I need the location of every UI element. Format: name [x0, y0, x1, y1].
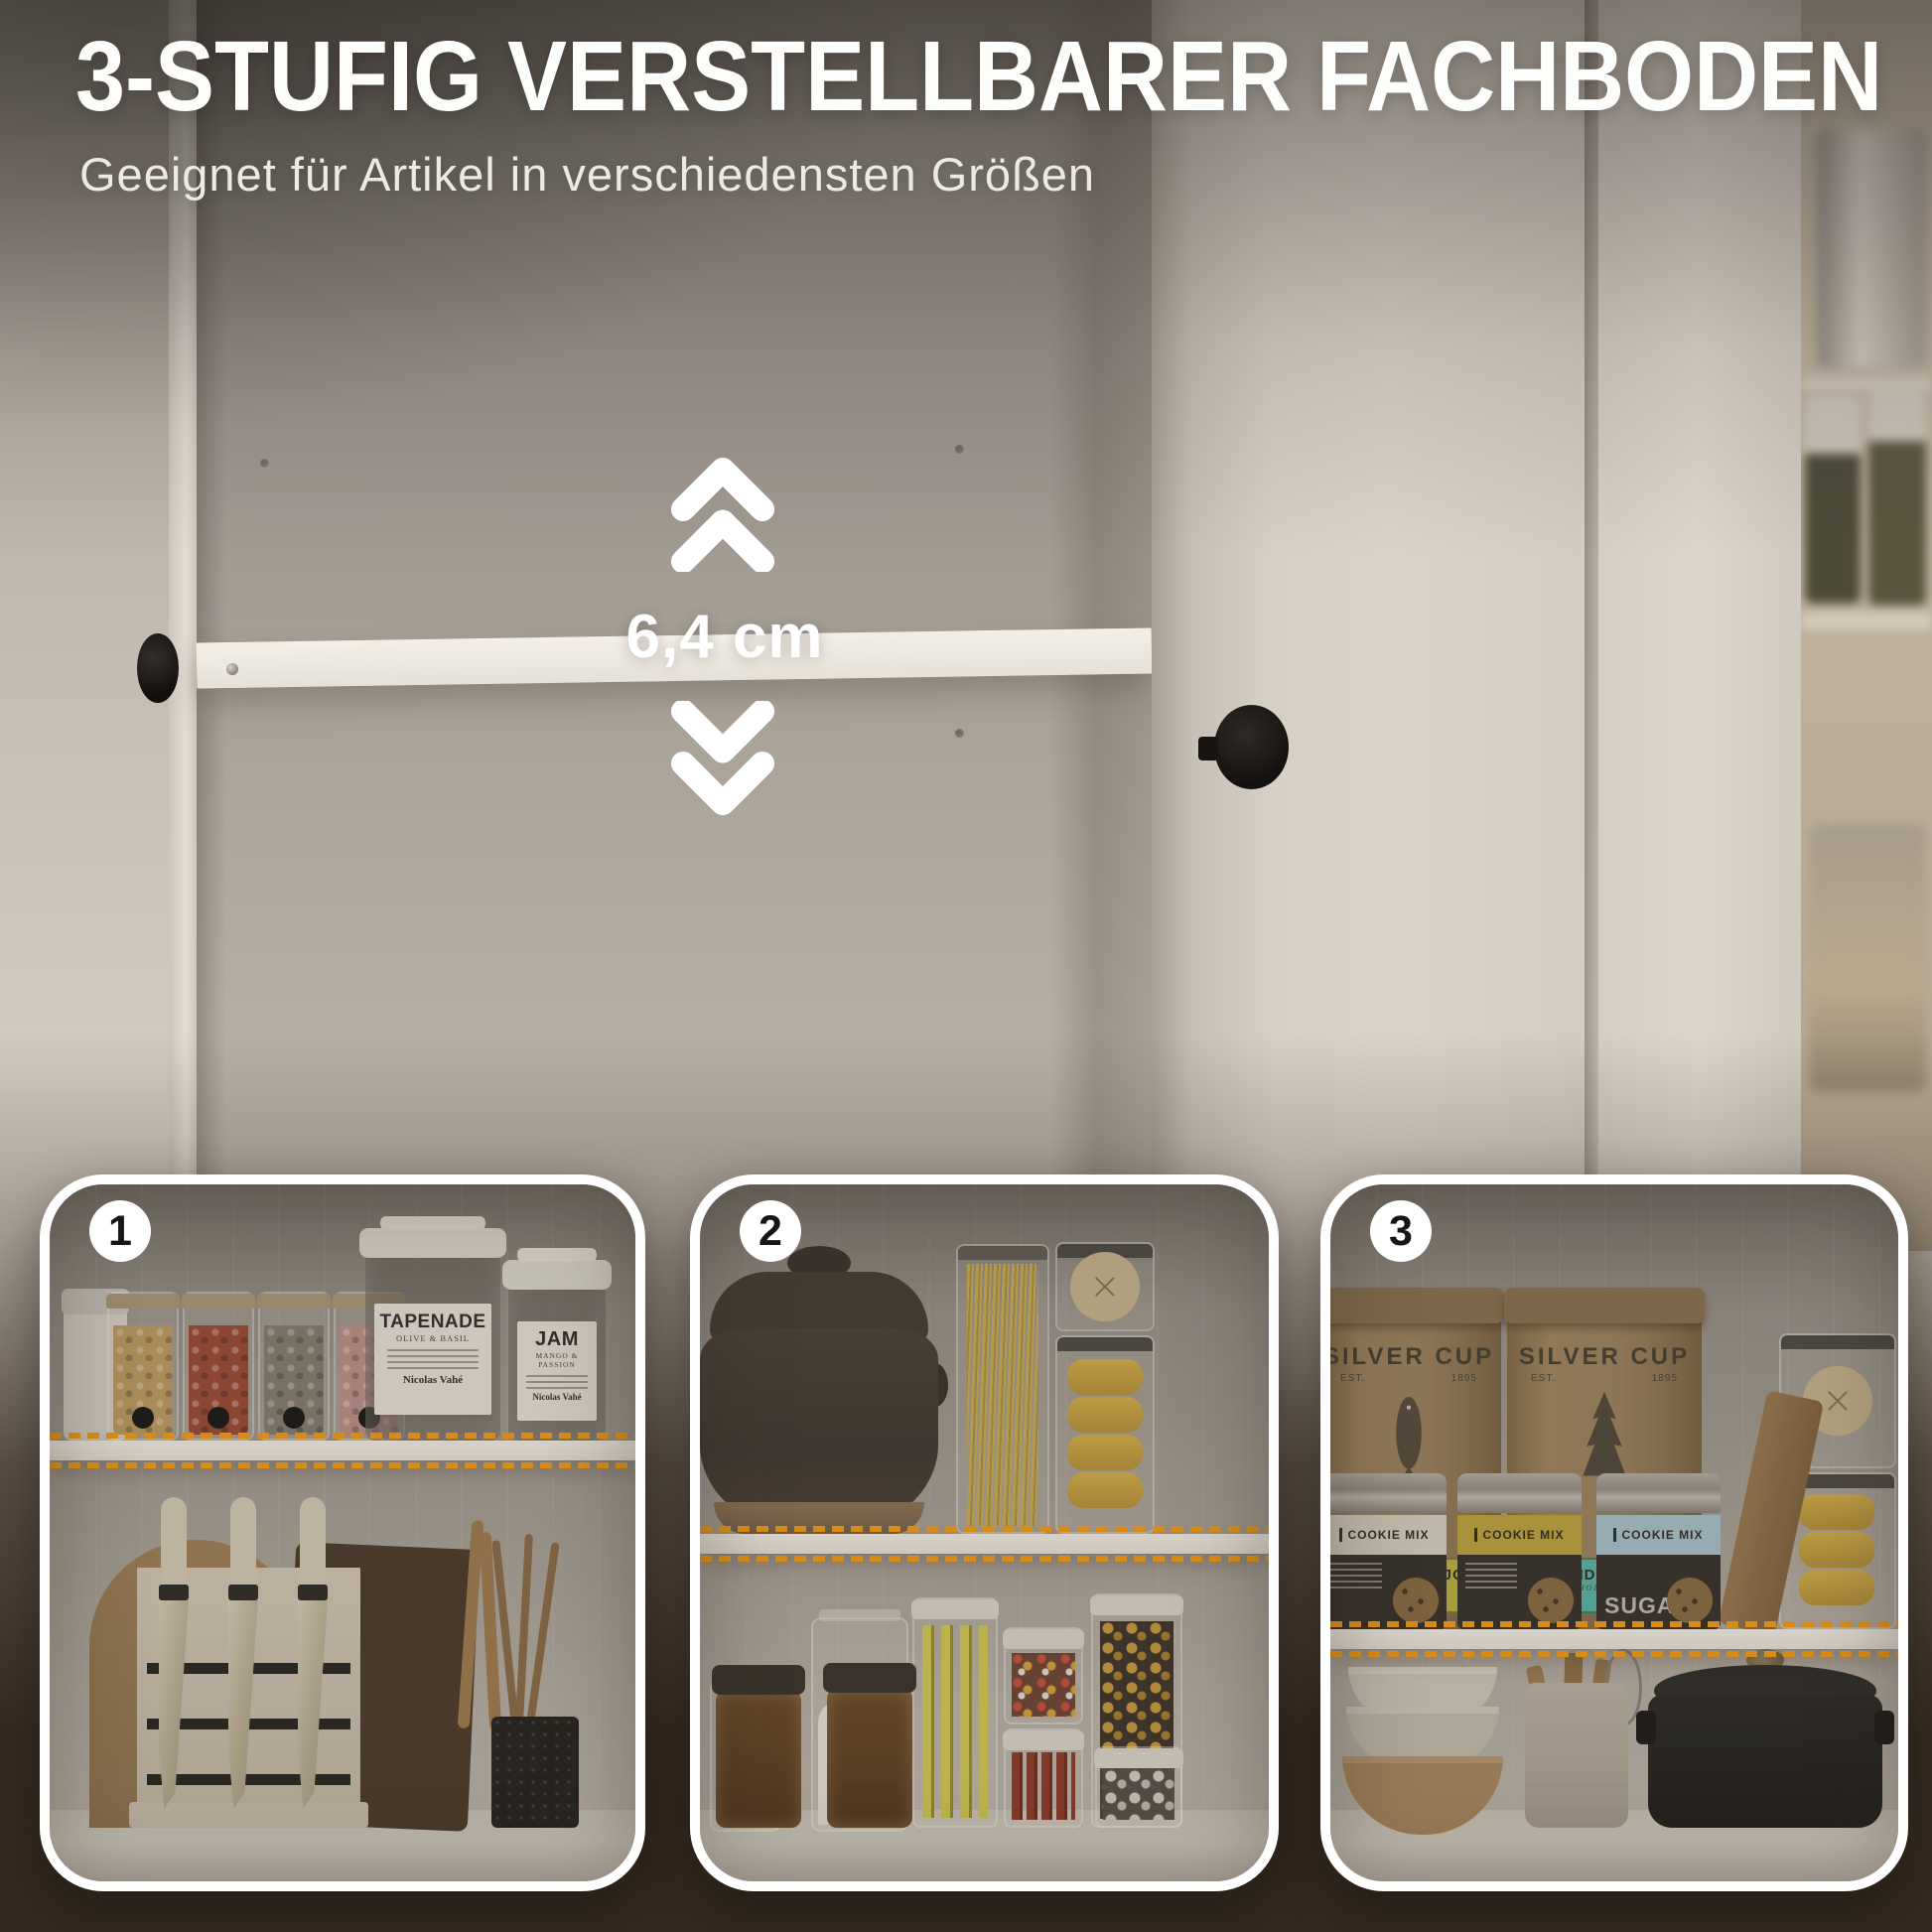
double-chevron-down-icon — [667, 701, 778, 824]
panel-shelf-position-3: SILVER CUP EST. 1895 SNOHO MOJO COARSE G… — [1320, 1174, 1908, 1891]
step-number: 2 — [759, 1207, 782, 1256]
panel-shelf-position-1: TAPENADE OLIVE & BASIL Nicolas Vahé JAM … — [40, 1174, 645, 1891]
step-number-badge-3: 3 — [1370, 1200, 1432, 1262]
corner-shading — [0, 0, 1932, 894]
page-subtitle: Geeignet für Artikel in verschiedensten … — [79, 147, 1095, 202]
double-chevron-up-icon — [667, 449, 778, 572]
photo-tint — [1330, 1184, 1898, 1881]
page-title: 3-STUFIG VERSTELLBARER FACHBODEN — [75, 22, 1882, 131]
step-number: 3 — [1389, 1207, 1413, 1256]
photo-tint — [700, 1184, 1269, 1881]
panel-shelf-position-2: flour ; — [690, 1174, 1279, 1891]
step-number-badge-1: 1 — [89, 1200, 151, 1262]
shelf-spacing-value: 6,4 cm — [556, 602, 894, 672]
product-infographic: 3-STUFIG VERSTELLBARER FACHBODEN Geeigne… — [0, 0, 1932, 1932]
photo-tint — [50, 1184, 635, 1881]
step-number: 1 — [108, 1207, 132, 1256]
step-number-badge-2: 2 — [740, 1200, 801, 1262]
